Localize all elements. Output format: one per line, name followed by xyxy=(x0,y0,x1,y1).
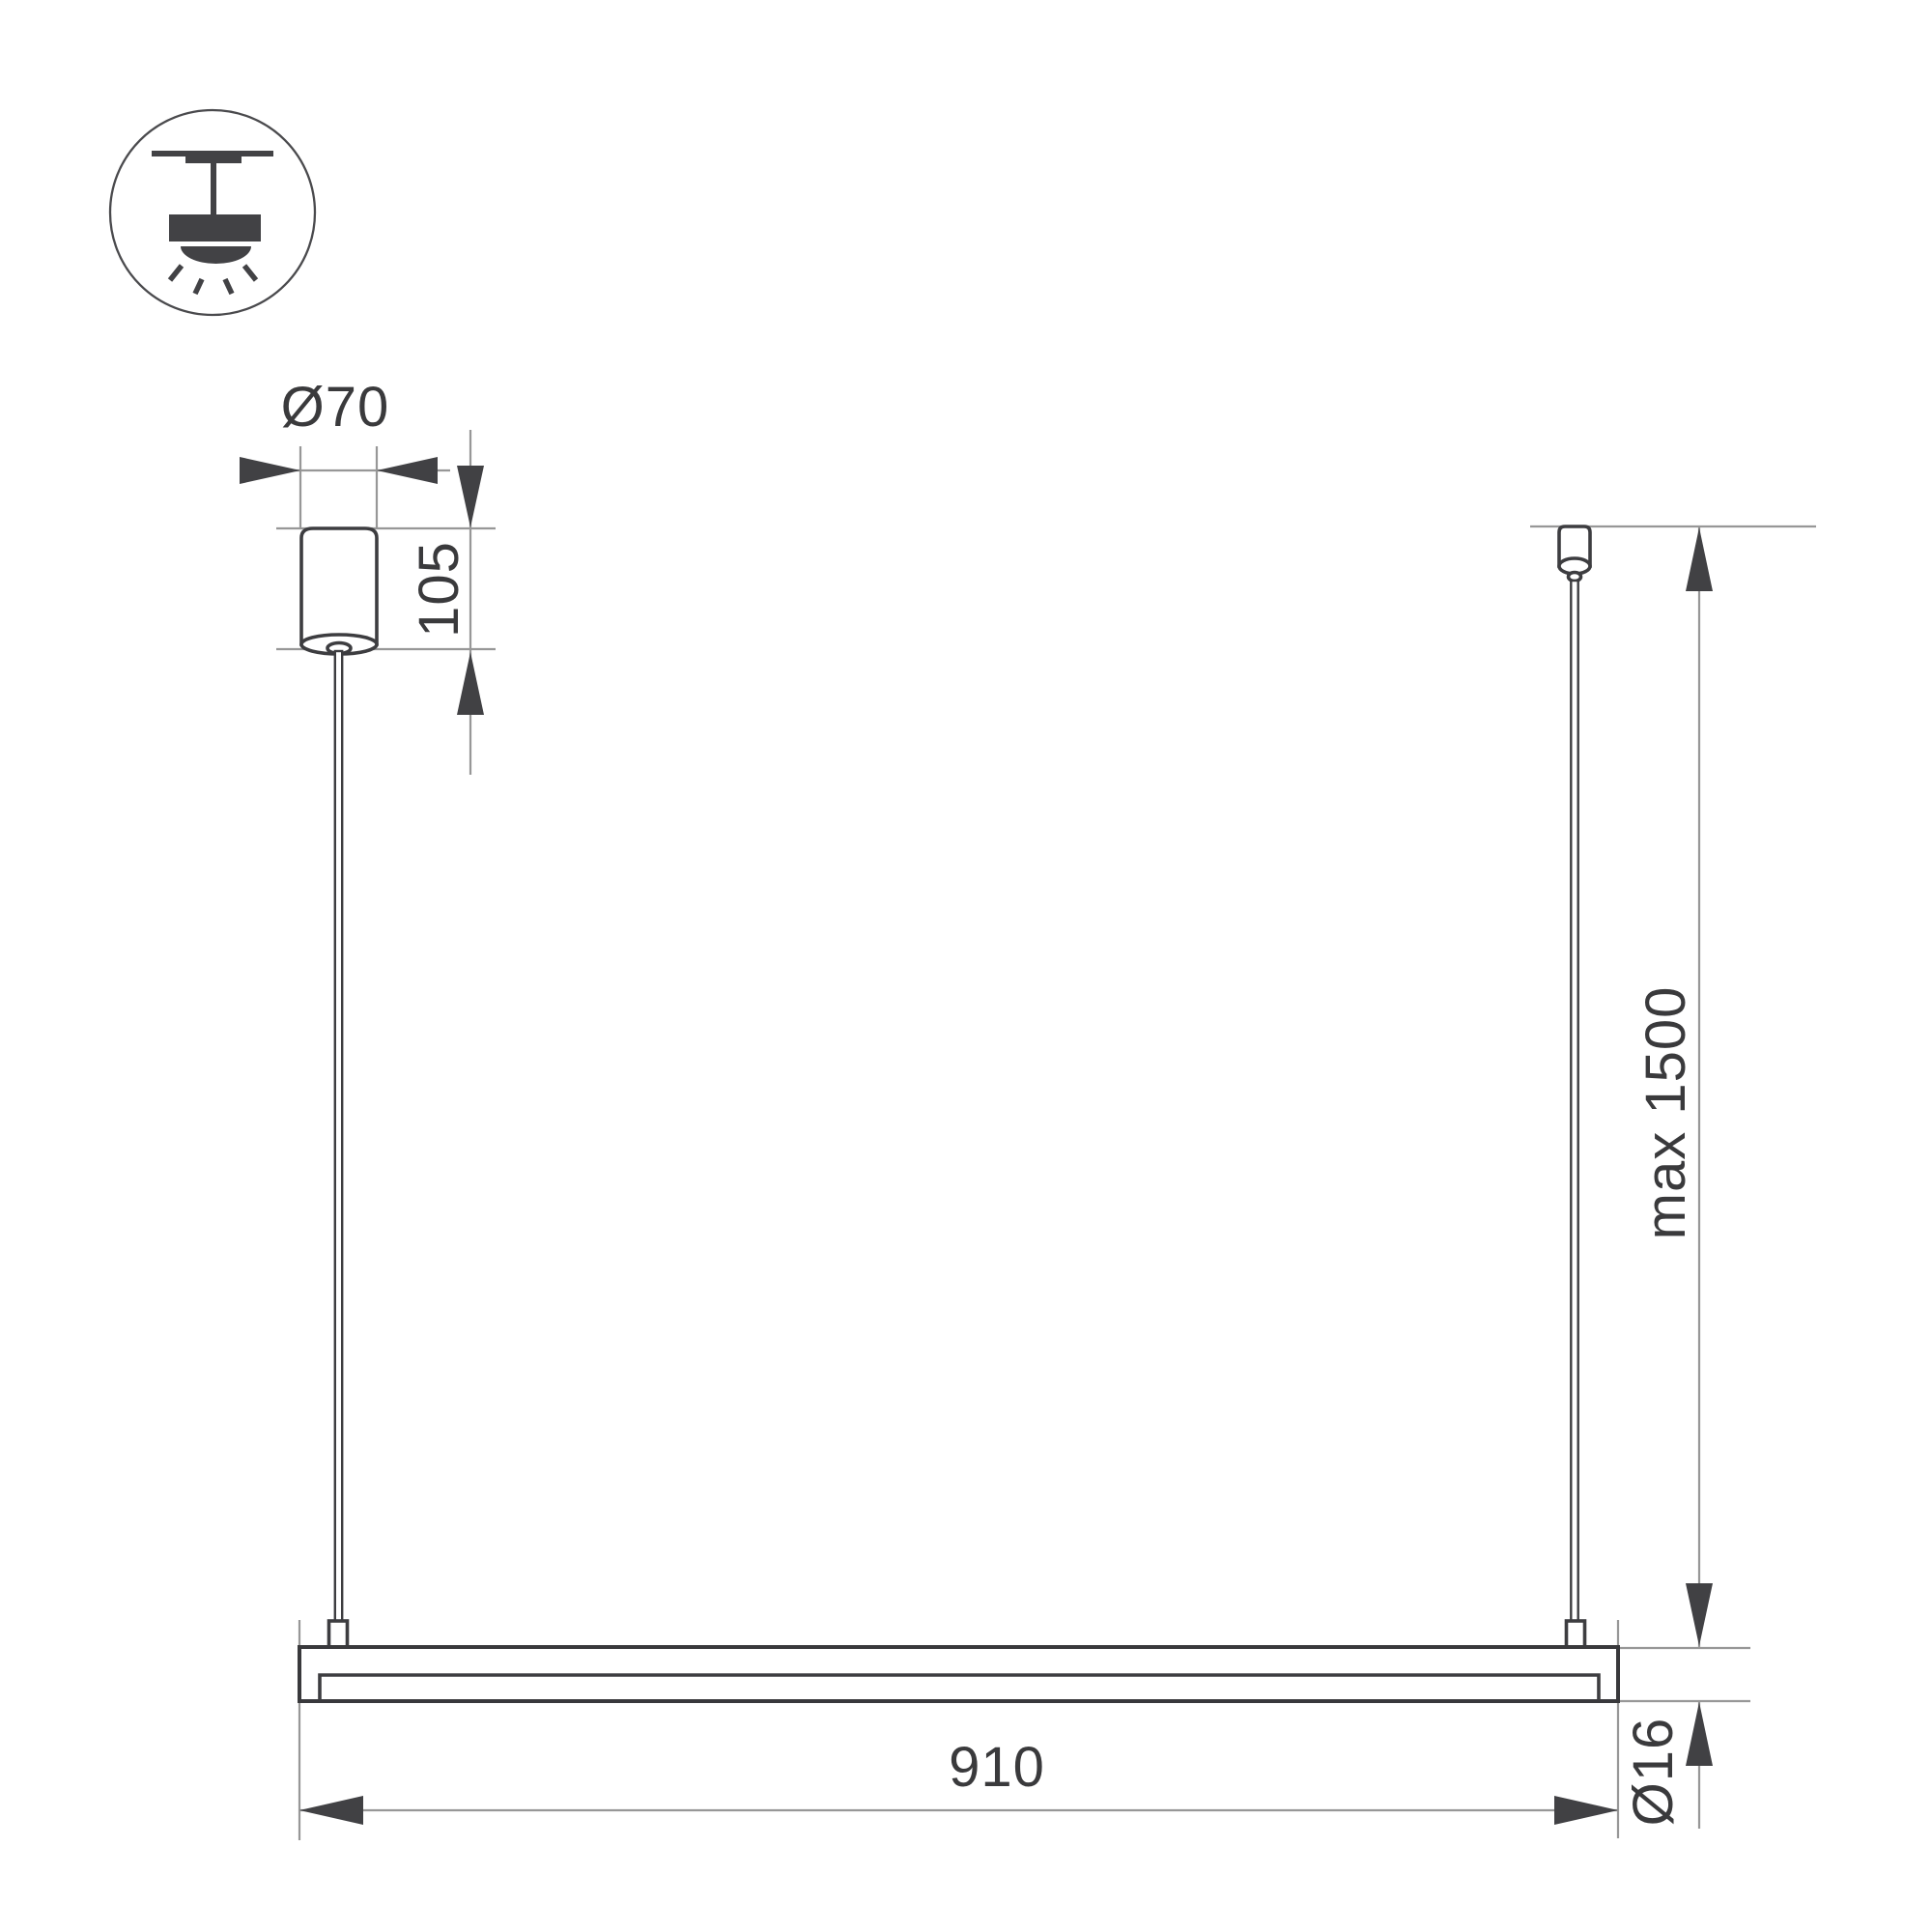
arrow-canopy-height-bottom xyxy=(457,652,484,715)
arrow-fixture-length-left xyxy=(299,1796,363,1825)
icon-lamp-body xyxy=(169,214,261,241)
suspension-length-label: max 1500 xyxy=(1634,986,1697,1240)
canopy-left xyxy=(301,528,377,654)
arrow-canopy-diameter-right xyxy=(377,457,438,484)
arrow-suspension-top xyxy=(1686,527,1713,591)
canopy-height-label: 105 xyxy=(408,541,470,638)
arrow-canopy-height-top xyxy=(457,466,484,527)
wire-connector-right xyxy=(1567,1621,1585,1649)
wire-connector-left xyxy=(329,1621,348,1649)
arrow-tube-diameter-bottom xyxy=(1686,1702,1713,1766)
light-bar xyxy=(299,1647,1618,1701)
dimension-arrows xyxy=(240,457,1713,1825)
tube-diameter-label: Ø16 xyxy=(1622,1718,1685,1827)
pendant-ceiling-light-icon xyxy=(110,110,315,315)
canopy-right xyxy=(1559,526,1590,582)
arrow-suspension-bottom xyxy=(1686,1583,1713,1646)
arrow-fixture-length-right xyxy=(1554,1796,1618,1825)
arrow-canopy-diameter-left xyxy=(240,457,300,484)
icon-mount-plate xyxy=(185,156,241,163)
icon-suspension-rod xyxy=(211,163,216,215)
fixture-length-label: 910 xyxy=(949,1736,1045,1799)
suspension-wire-right xyxy=(1571,581,1577,1621)
canopy-diameter-label: Ø70 xyxy=(281,376,390,439)
technical-drawing-canvas: Ø70 105 max 1500 910 Ø16 xyxy=(0,0,1932,1932)
suspension-wire-left xyxy=(335,651,342,1621)
dimension-drawing: Ø70 105 max 1500 910 Ø16 xyxy=(0,0,1932,1932)
canopy-body xyxy=(301,528,377,644)
